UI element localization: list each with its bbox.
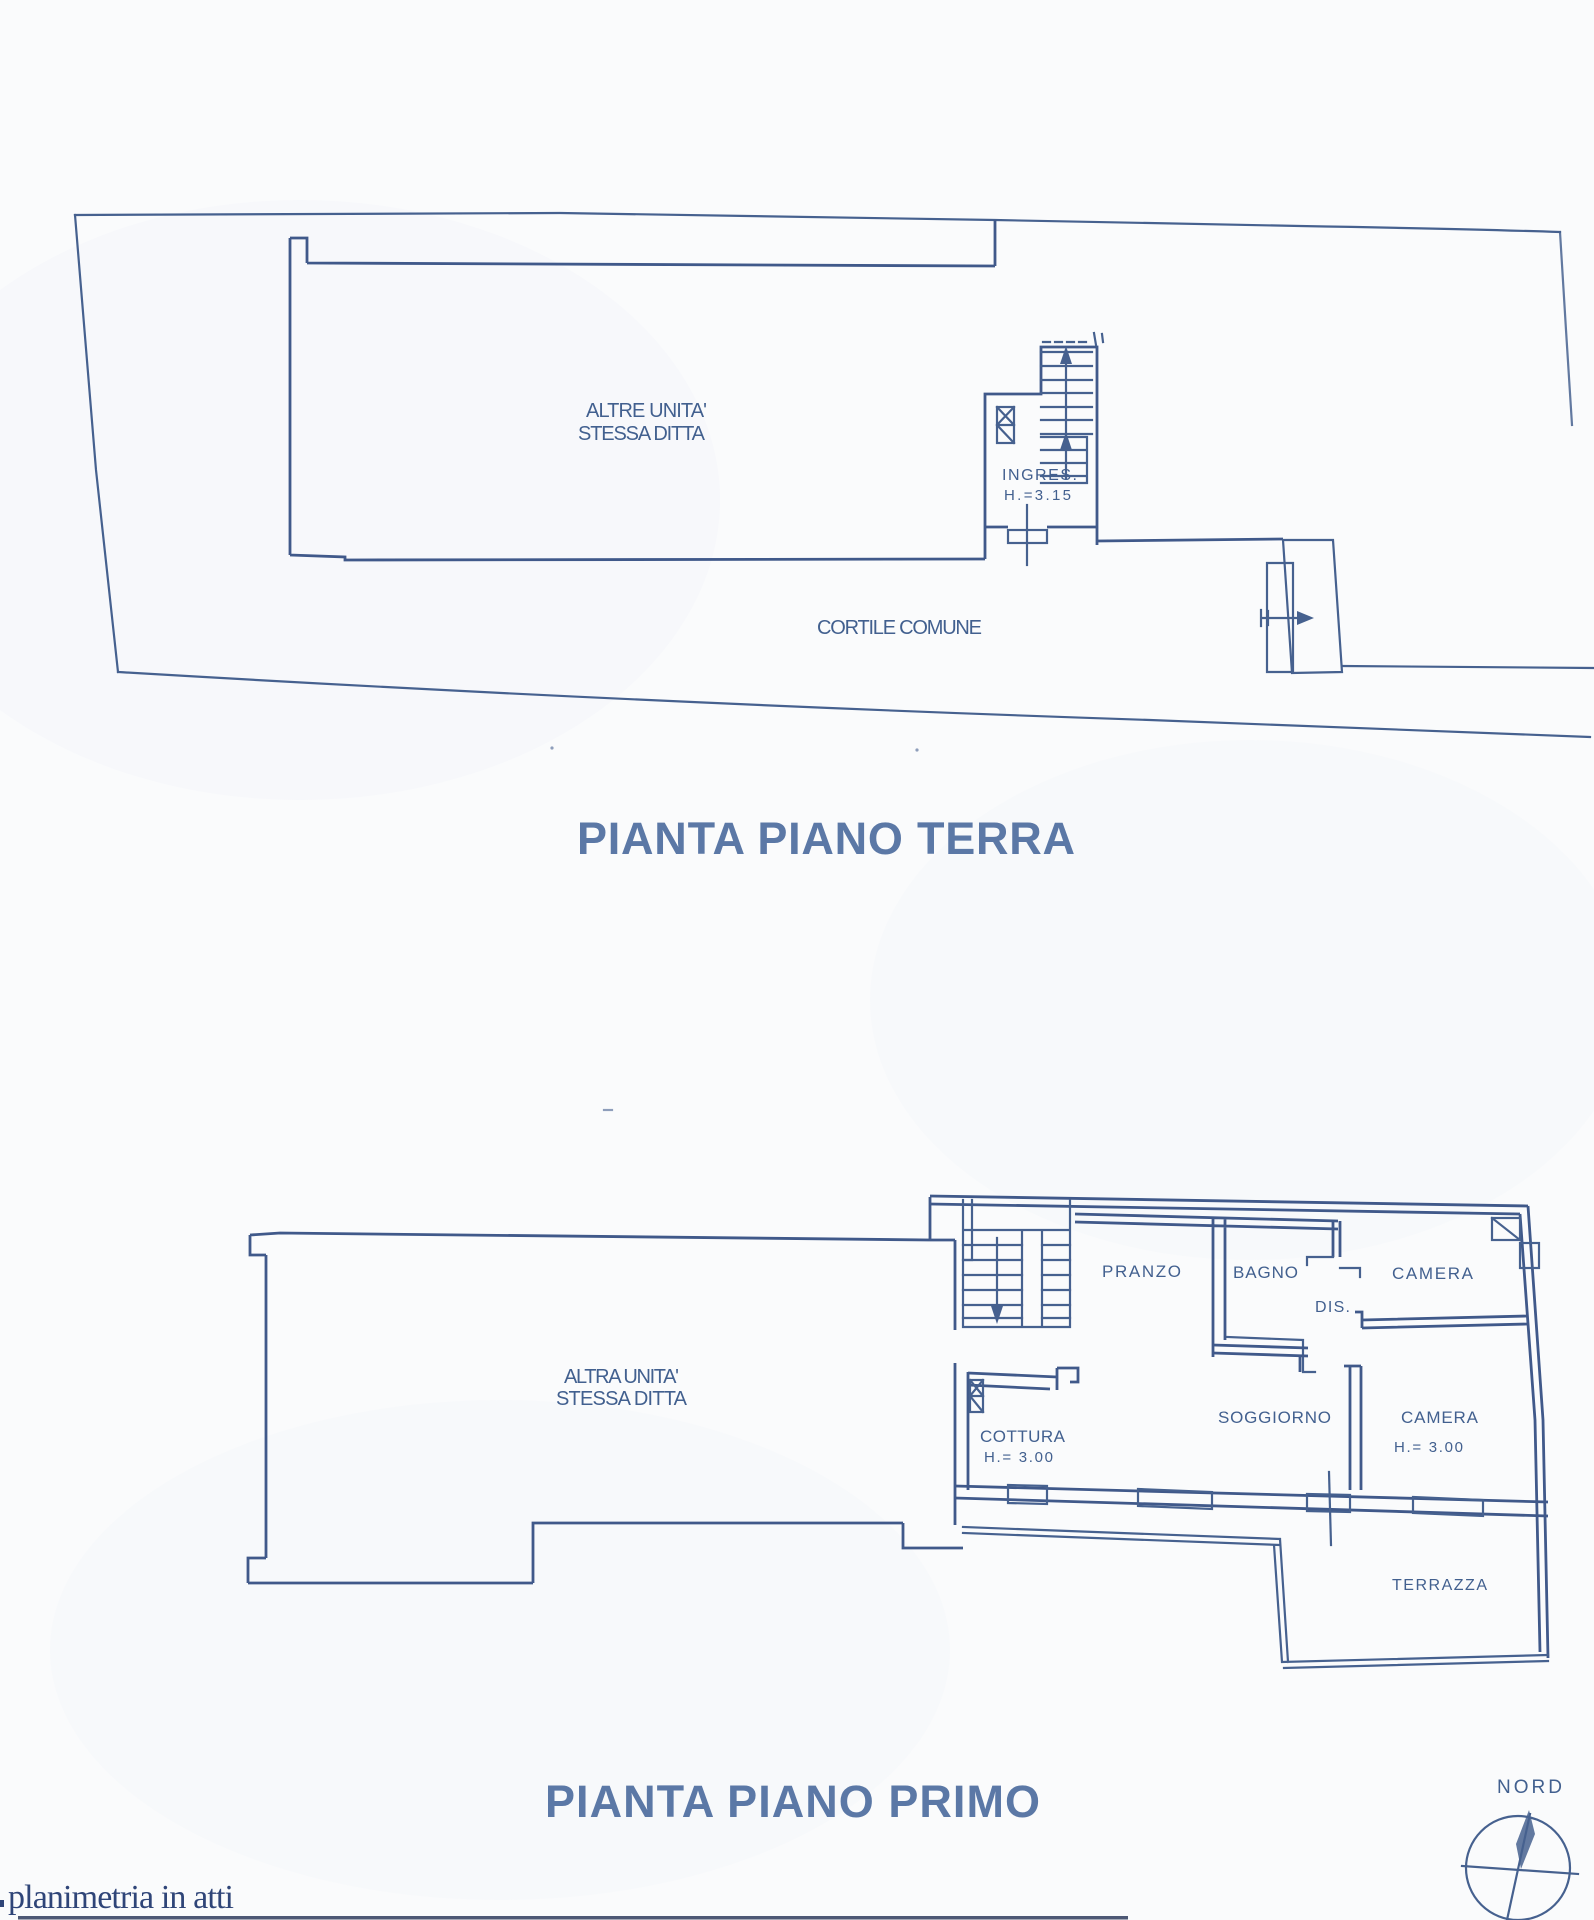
scan-edge-artifact (18, 1916, 1128, 1920)
stair-up-arrow-head (1060, 346, 1072, 364)
south-wall (955, 1472, 1548, 1545)
room-label-camera1: CAMERA (1392, 1264, 1474, 1283)
room-label-camera2: CAMERA (1401, 1408, 1479, 1427)
stair-top-ticks (1094, 333, 1103, 345)
room-label-pranzo: PRANZO (1102, 1262, 1182, 1281)
title-pianta-piano-primo: PIANTA PIANO PRIMO (545, 1776, 1042, 1827)
room-label-cottura: COTTURA (980, 1427, 1066, 1446)
label-altre-unita: ALTRE UNITA' (586, 400, 708, 422)
stairwell (930, 1200, 1070, 1525)
room-label-soggiorno: SOGGIORNO (1218, 1408, 1332, 1427)
cut-glyph-fragment (0, 1900, 4, 1907)
room-label-cottura-height: H.= 3.00 (984, 1449, 1054, 1466)
room-label-bagno: BAGNO (1233, 1263, 1299, 1282)
paper-texture (0, 200, 1594, 1900)
camera1-bottom-wall (1355, 1312, 1528, 1328)
label-ingresso-height: H.=3.15 (1004, 487, 1072, 504)
compass-rose: NORD (1462, 1777, 1578, 1920)
label-stessa-ditta-first: STESSA DITTA (556, 1388, 688, 1410)
entrance-closet (997, 407, 1014, 443)
compass-ew-line (1462, 1866, 1578, 1874)
entrance-walls (985, 347, 1283, 559)
terrace-parapet (963, 1527, 1548, 1668)
stair-treads-right (1042, 1245, 1070, 1318)
courtyard-gate (1261, 540, 1342, 673)
title-pianta-piano-terra: PIANTA PIANO TERRA (577, 813, 1077, 864)
label-stessa-ditta-ground: STESSA DITTA (578, 423, 706, 445)
label-ingresso: INGRES. (1002, 467, 1078, 484)
bagno-door-jambs (1307, 1257, 1360, 1277)
soggiorno-top-wall (1213, 1345, 1308, 1372)
scanned-floorplan-page: ALTRE UNITA' STESSA DITTA INGRES. H.=3.1… (0, 0, 1594, 1920)
corner-shaft-box (1492, 1218, 1520, 1240)
label-cortile-comune: CORTILE COMUNE (817, 617, 983, 639)
compass-label-nord: NORD (1497, 1777, 1563, 1798)
room-label-terrazza: TERRAZZA (1392, 1577, 1488, 1594)
room-label-dis: DIS. (1315, 1299, 1351, 1316)
gate-arrow-head (1297, 611, 1314, 625)
room-label-camera2-height: H.= 3.00 (1394, 1439, 1464, 1456)
partition-soggiorno-camera2 (1344, 1366, 1361, 1490)
label-altra-unita: ALTRA UNITA' (564, 1366, 680, 1388)
footer-note: planimetria in atti (8, 1879, 234, 1916)
floorplan-canvas: ALTRE UNITA' STESSA DITTA INGRES. H.=3.1… (0, 0, 1594, 1920)
courtyard-right-line (1342, 666, 1594, 668)
scan-speckles-top (550, 746, 918, 751)
south-wall-section-line (1329, 1472, 1331, 1545)
parcel-boundary-right (1560, 232, 1572, 425)
stair-down-arrow-head (991, 1306, 1003, 1324)
